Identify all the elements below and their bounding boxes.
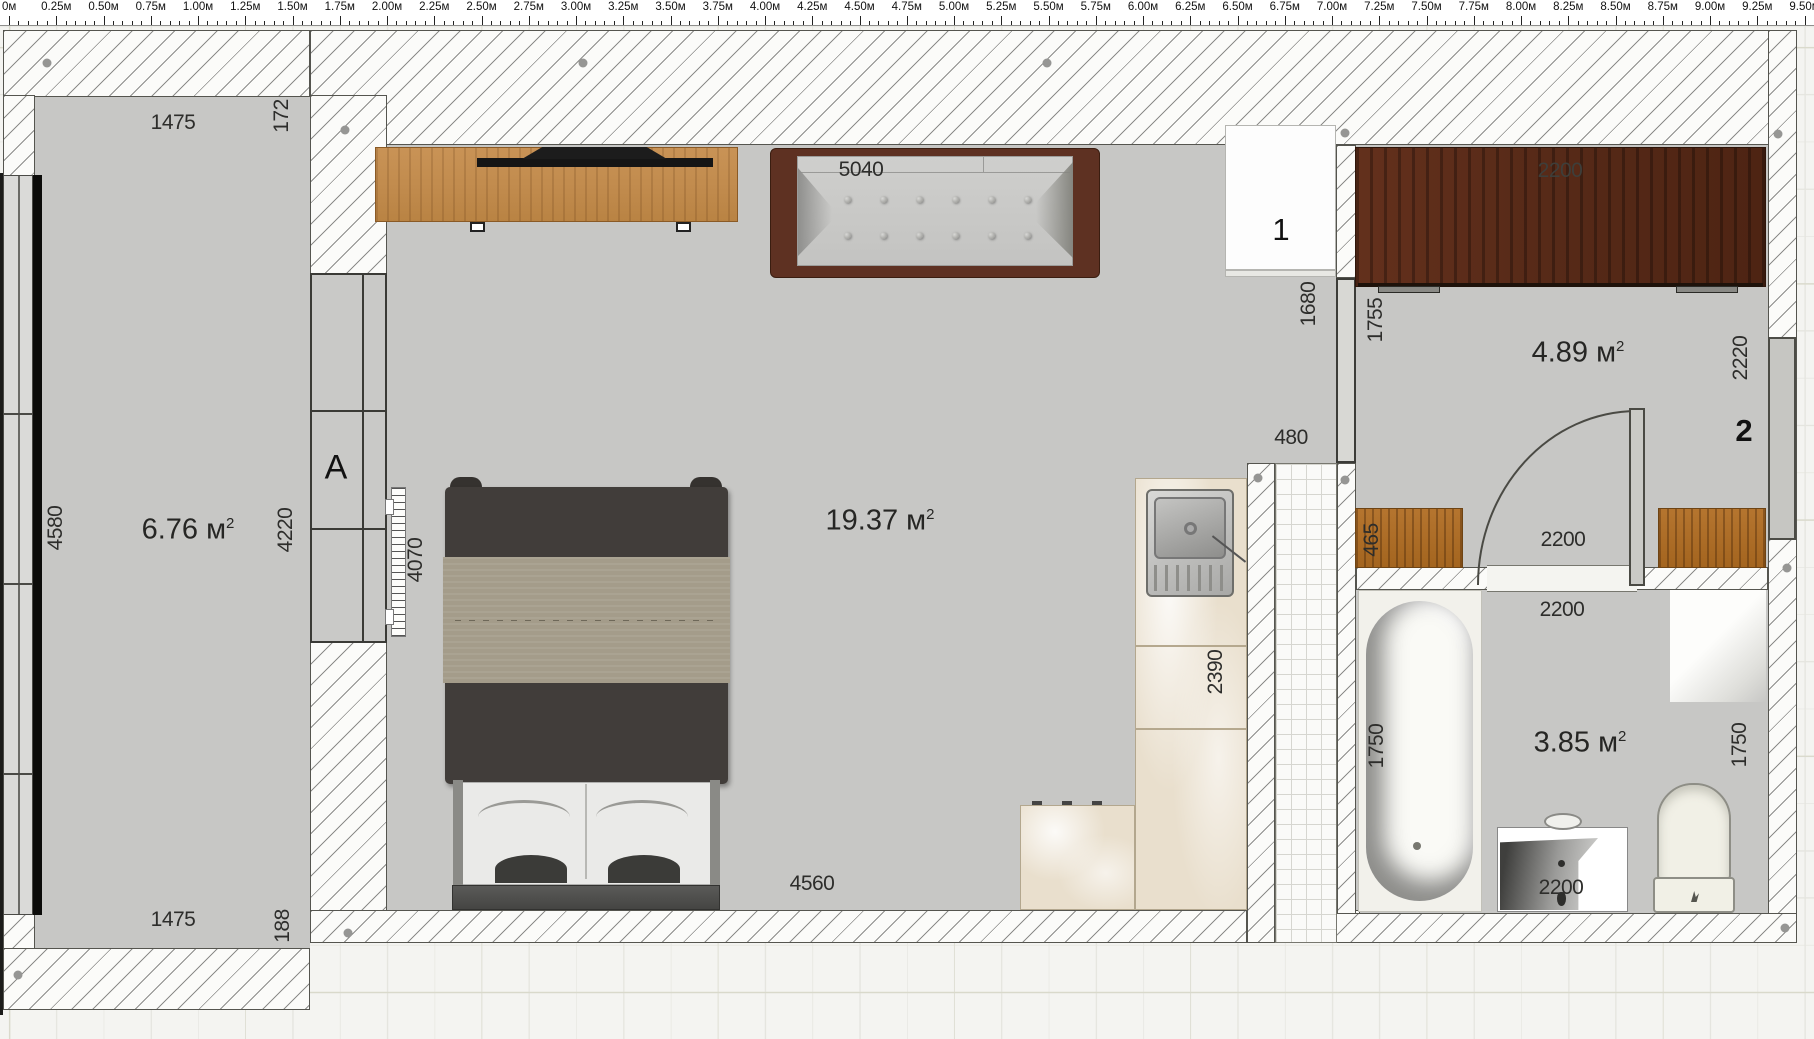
ruler-tick-minor — [255, 21, 256, 25]
dim-balcony-bottom: 1475 — [151, 908, 196, 932]
ruler-tick-minor — [453, 21, 454, 25]
ruler-tick-major — [718, 16, 719, 25]
ruler-tick-minor — [548, 21, 549, 25]
ruler-tick-minor — [1672, 21, 1673, 25]
ruler-tick-minor — [642, 21, 643, 25]
ruler-tick-minor — [113, 21, 114, 25]
area-hallway-value: 4.89 — [1532, 337, 1588, 369]
tv-stand-foot — [470, 222, 485, 232]
ruler-tick-major — [1332, 16, 1333, 25]
ruler-tick-major — [1427, 16, 1428, 25]
ruler-label: 1.50м — [277, 1, 307, 13]
ruler-tick-minor — [519, 21, 520, 25]
ruler-tick-major — [907, 16, 908, 25]
ruler-label: 3.50м — [655, 1, 685, 13]
dim-living-wall: 1680 — [1297, 282, 1321, 327]
ruler-tick-minor — [500, 21, 501, 25]
ruler-tick-minor — [926, 21, 927, 25]
ruler-tick-minor — [1370, 21, 1371, 25]
ruler-label: 9.00м — [1695, 1, 1725, 13]
wall-balcony-left-upper — [3, 95, 35, 177]
ruler-label: 5.00м — [939, 1, 969, 13]
kitchen-counter-seam — [1136, 645, 1246, 647]
ruler-tick-major — [1143, 16, 1144, 25]
ruler-tick-minor — [47, 21, 48, 25]
ruler-tick-minor — [491, 21, 492, 25]
dim-living-side: 4070 — [404, 538, 428, 583]
ruler-tick-major — [1805, 16, 1806, 25]
ruler-tick-minor — [1719, 21, 1720, 25]
ruler-label: 1.75м — [325, 1, 355, 13]
window-A-divider — [312, 528, 385, 530]
ruler-tick-minor — [1682, 21, 1683, 25]
bed-rail-right — [710, 780, 720, 885]
ruler-tick-major — [1379, 16, 1380, 25]
ruler-tick-minor — [1067, 21, 1068, 25]
ruler-tick-minor — [1341, 21, 1342, 25]
ruler-tick-minor — [226, 21, 227, 25]
ruler-tick-minor — [160, 21, 161, 25]
ruler-tick-minor — [538, 21, 539, 25]
ruler-tick-minor — [841, 21, 842, 25]
bed-pillow — [478, 800, 570, 834]
ruler-tick-minor — [784, 21, 785, 25]
ruler-tick-minor — [614, 21, 615, 25]
ruler-tick-minor — [680, 21, 681, 25]
ruler-tick-minor — [633, 21, 634, 25]
ruler-label: 3.75м — [703, 1, 733, 13]
ruler-label: 1.00м — [183, 1, 213, 13]
ruler-tick-major — [623, 16, 624, 25]
dim-cabinet: 465 — [1360, 523, 1384, 557]
ruler-tick-minor — [189, 21, 190, 25]
ruler-tick-minor — [992, 21, 993, 25]
ruler-tick-minor — [1455, 21, 1456, 25]
ruler-tick-minor — [822, 21, 823, 25]
wall-joint-dot — [1783, 564, 1792, 573]
ruler-tick-minor — [945, 21, 946, 25]
window-frame-mullion — [18, 176, 20, 914]
ruler-tick-minor — [378, 21, 379, 25]
ruler-tick-minor — [444, 21, 445, 25]
wall-joint-dot — [1781, 924, 1790, 933]
ruler-tick-major — [1238, 16, 1239, 25]
ruler-tick-minor — [368, 21, 369, 25]
wall-joint-dot — [43, 59, 52, 68]
ruler-label: 5.25м — [986, 1, 1016, 13]
wall-joint-dot — [579, 59, 588, 68]
door-1-leaf[interactable] — [1225, 125, 1336, 270]
bed-pillow — [596, 800, 688, 834]
ruler-tick-major — [1710, 16, 1711, 25]
ruler-tick-minor — [1058, 21, 1059, 25]
ruler-tick-minor — [1115, 21, 1116, 25]
ruler-tick-minor — [283, 21, 284, 25]
ruler-tick-minor — [37, 21, 38, 25]
ruler-tick-major — [9, 16, 10, 25]
ruler-tick-major — [198, 16, 199, 25]
dim-sofa: 5040 — [839, 158, 884, 182]
area-living-value: 19.37 — [826, 505, 899, 537]
ruler-tick-major — [482, 16, 483, 25]
window-A-mullion — [362, 275, 364, 641]
ruler-tick-minor — [264, 21, 265, 25]
ruler-tick-minor — [1445, 21, 1446, 25]
ruler-tick-minor — [1417, 21, 1418, 25]
dim-balcony-wall-bottom: 188 — [271, 909, 295, 943]
ruler-tick-major — [1616, 16, 1617, 25]
ruler-tick-minor — [1171, 21, 1172, 25]
ruler-tick-minor — [1776, 21, 1777, 25]
ruler-tick-minor — [1086, 21, 1087, 25]
ruler-label: 3.25м — [608, 1, 638, 13]
toilet-bowl[interactable] — [1657, 783, 1731, 883]
ruler-tick-minor — [1606, 21, 1607, 25]
area-hallway: 4.89 м2 — [1532, 337, 1625, 370]
ruler-tick-major — [1049, 16, 1050, 25]
sofa-tuft-dot — [880, 196, 887, 203]
tape-measure-handle[interactable] — [385, 609, 394, 625]
ruler-label: 6.50м — [1222, 1, 1252, 13]
dim-counter: 2390 — [1204, 650, 1228, 695]
ruler-label: 7.25м — [1364, 1, 1394, 13]
ruler-tick-minor — [1039, 21, 1040, 25]
ruler-label: 9.50м — [1789, 1, 1814, 13]
ruler-tick-minor — [1228, 21, 1229, 25]
ruler-label: 6.00м — [1128, 1, 1158, 13]
ruler-tick-major — [529, 16, 530, 25]
ruler-tick-minor — [1729, 21, 1730, 25]
sofa-tuft-dot — [988, 232, 995, 239]
ruler-label: 5.75м — [1081, 1, 1111, 13]
ruler-tick-minor — [1597, 21, 1598, 25]
ruler-tick-minor — [1625, 21, 1626, 25]
wall-joint-dot — [1341, 129, 1350, 138]
dim-bathroom-top: 2200 — [1540, 598, 1585, 622]
dim-bathroom-right: 1750 — [1728, 723, 1752, 768]
ruler-tick-minor — [1077, 21, 1078, 25]
sofa-tuft-dot — [916, 232, 923, 239]
ruler-tick-minor — [463, 21, 464, 25]
area-balcony-sup: 2 — [226, 515, 234, 532]
ruler-tick-minor — [349, 21, 350, 25]
door-2-leaf[interactable] — [1768, 337, 1796, 540]
ruler-tick-minor — [1398, 21, 1399, 25]
bed-blanket-fold — [608, 855, 680, 883]
ruler-tick-major — [434, 16, 435, 25]
dim-hallway-door: 2200 — [1541, 528, 1586, 552]
sofa-tuft-dot — [916, 196, 923, 203]
window-pane-divider — [4, 413, 32, 415]
ruler-tick-major — [1521, 16, 1522, 25]
balcony-window-frame[interactable] — [3, 175, 33, 915]
ruler-tick-major — [1190, 16, 1191, 25]
wall-bottom-bathroom — [1335, 913, 1797, 943]
ruler-tick-minor — [122, 21, 123, 25]
ruler-tick-minor — [1134, 21, 1135, 25]
ruler-tick-major — [1663, 16, 1664, 25]
wardrobe-bracket — [1378, 286, 1440, 293]
ruler-tick-major — [1757, 16, 1758, 25]
ruler-label: 4.75м — [892, 1, 922, 13]
wall-balcony-divider-lower — [310, 641, 387, 913]
ruler-tick-minor — [274, 21, 275, 25]
dim-balcony-left: 4580 — [44, 506, 68, 551]
ruler-tick-major — [671, 16, 672, 25]
tv-stand-foot — [676, 222, 691, 232]
door-1-threshold — [1225, 270, 1336, 277]
ruler-tick-minor — [1152, 21, 1153, 25]
ruler-tick-minor — [75, 21, 76, 25]
sofa-tuft-dot — [988, 196, 995, 203]
ruler-label: 8.50м — [1600, 1, 1630, 13]
ruler-tick-minor — [595, 21, 596, 25]
dim-balcony-right: 4220 — [274, 508, 298, 553]
ruler-tick-minor — [604, 21, 605, 25]
ruler-tick-minor — [132, 21, 133, 25]
tape-measure-handle[interactable] — [385, 499, 394, 515]
door-1-label: 1 — [1272, 212, 1289, 248]
sofa-tuft-dot — [1024, 196, 1031, 203]
wall-joint-dot — [1043, 59, 1052, 68]
kitchen-counter-handles — [1032, 801, 1102, 805]
ruler-tick-minor — [302, 21, 303, 25]
wall-top-main — [310, 30, 1797, 145]
ruler-tick-major — [1001, 16, 1002, 25]
ruler-tick-minor — [1247, 21, 1248, 25]
window-A-label: A — [325, 449, 348, 488]
ruler-tick-minor — [1124, 21, 1125, 25]
ruler-label: 0.75м — [136, 1, 166, 13]
ruler-tick-major — [293, 16, 294, 25]
dim-living-bottom: 4560 — [790, 872, 835, 896]
ruler-tick-minor — [793, 21, 794, 25]
shower-zone[interactable] — [1670, 590, 1766, 702]
ruler-tick-minor — [1795, 21, 1796, 25]
ruler-tick-minor — [585, 21, 586, 25]
ruler-tick-minor — [897, 21, 898, 25]
ruler-tick-minor — [141, 21, 142, 25]
wall-shaft-right — [1337, 463, 1356, 943]
window-pane-divider — [4, 773, 32, 775]
sofa-tuft-dot — [880, 232, 887, 239]
ruler-label: 9.25м — [1742, 1, 1772, 13]
ruler-tick-minor — [1701, 21, 1702, 25]
ruler-tick-minor — [699, 21, 700, 25]
area-hallway-sup: 2 — [1616, 338, 1624, 355]
ruler-tick-minor — [1634, 21, 1635, 25]
ruler-tick-minor — [935, 21, 936, 25]
ruler-tick-minor — [1256, 21, 1257, 25]
ruler-tick-minor — [425, 21, 426, 25]
ruler-tick-minor — [746, 21, 747, 25]
ruler-label: 1.25м — [230, 1, 260, 13]
ruler-label: 8.00м — [1506, 1, 1536, 13]
ruler-tick-minor — [652, 21, 653, 25]
ruler-tick-minor — [1493, 21, 1494, 25]
dim-balcony-wall: 172 — [270, 99, 294, 133]
ruler-tick-minor — [756, 21, 757, 25]
ruler-label: 2.00м — [372, 1, 402, 13]
wall-joint-dot — [1341, 476, 1350, 485]
area-living-sup: 2 — [926, 506, 934, 523]
ruler-tick-minor — [557, 21, 558, 25]
ruler-tick-minor — [1738, 21, 1739, 25]
ruler-tick-minor — [396, 21, 397, 25]
dim-hallway-right: 2220 — [1729, 336, 1753, 381]
sofa-tuft-dot — [844, 232, 851, 239]
ruler-tick-minor — [1011, 21, 1012, 25]
ruler-tick-minor — [66, 21, 67, 25]
ruler-tick-minor — [963, 21, 964, 25]
area-bathroom-sup: 2 — [1618, 728, 1626, 745]
sink-drain — [1184, 522, 1197, 535]
ruler-tick-minor — [311, 21, 312, 25]
ruler-tick-minor — [359, 21, 360, 25]
ruler-tick-minor — [1360, 21, 1361, 25]
ruler-tick-major — [1474, 16, 1475, 25]
ruler-tick-minor — [888, 21, 889, 25]
ruler-tick-minor — [472, 21, 473, 25]
ruler-tick-minor — [1436, 21, 1437, 25]
ruler-tick-minor — [217, 21, 218, 25]
ruler-tick-minor — [1266, 21, 1267, 25]
ruler-label: 5.50м — [1033, 1, 1063, 13]
ruler-tick-minor — [1389, 21, 1390, 25]
ruler-label: 2.50м — [466, 1, 496, 13]
tv-base — [522, 147, 667, 159]
ruler-label: 4.25м — [797, 1, 827, 13]
ruler-tick-minor — [1502, 21, 1503, 25]
ruler-tick-minor — [1540, 21, 1541, 25]
area-hallway-unit: м — [1596, 337, 1616, 369]
wall-joint-dot — [344, 929, 353, 938]
ruler-tick-minor — [1030, 21, 1031, 25]
ruler-tick-minor — [1351, 21, 1352, 25]
area-balcony-unit: м — [206, 514, 226, 546]
ruler-tick-minor — [1020, 21, 1021, 25]
dim-vanity: 2200 — [1539, 876, 1584, 900]
ruler-label: 7.50м — [1411, 1, 1441, 13]
ruler-tick-minor — [1653, 21, 1654, 25]
ruler-tick-minor — [1304, 21, 1305, 25]
area-balcony-value: 6.76 — [142, 514, 198, 546]
area-living-unit: м — [906, 505, 926, 537]
bed-blanket-fold — [495, 855, 567, 883]
wall-joint-dot — [1774, 130, 1783, 139]
ruler-label: 7.75м — [1459, 1, 1489, 13]
ruler-tick-minor — [878, 21, 879, 25]
sofa-tuft-dot — [1024, 232, 1031, 239]
ruler-label: 6.25м — [1175, 1, 1205, 13]
ruler-tick-minor — [28, 21, 29, 25]
ruler-tick-minor — [170, 21, 171, 25]
kitchen-counter-corner[interactable] — [1020, 805, 1135, 910]
ruler-tick-major — [387, 16, 388, 25]
ruler-tick-minor — [330, 21, 331, 25]
ruler[interactable]: 0м0.25м0.50м0.75м1.00м1.25м1.50м1.75м2.0… — [0, 0, 1814, 26]
ruler-tick-minor — [1464, 21, 1465, 25]
ruler-label: 6.75м — [1270, 1, 1300, 13]
door-bathroom-leaf[interactable] — [1629, 408, 1645, 586]
ruler-label: 8.75м — [1648, 1, 1678, 13]
ruler-tick-minor — [1530, 21, 1531, 25]
ruler-tick-minor — [661, 21, 662, 25]
ruler-tick-minor — [916, 21, 917, 25]
ruler-tick-major — [56, 16, 57, 25]
wall-bottom-balcony — [3, 948, 310, 1010]
ruler-tick-minor — [1691, 21, 1692, 25]
ruler-tick-minor — [982, 21, 983, 25]
ruler-tick-minor — [1408, 21, 1409, 25]
door-2-label: 2 — [1735, 413, 1752, 449]
ruler-tick-major — [1096, 16, 1097, 25]
ruler-tick-minor — [1323, 21, 1324, 25]
bathtub-drain — [1413, 842, 1421, 850]
ruler-tick-minor — [236, 21, 237, 25]
ruler-tick-minor — [1748, 21, 1749, 25]
ruler-tick-minor — [737, 21, 738, 25]
area-bathroom-value: 3.85 — [1534, 727, 1590, 759]
area-living: 19.37 м2 — [826, 505, 935, 538]
area-bathroom: 3.85 м2 — [1534, 727, 1627, 760]
ruler-tick-minor — [1559, 21, 1560, 25]
partition-wall-1680[interactable] — [1336, 278, 1356, 463]
ruler-tick-minor — [1578, 21, 1579, 25]
ruler-tick-minor — [1219, 21, 1220, 25]
vanity-drain-dot — [1558, 860, 1565, 867]
wall-living-right-upper — [1336, 145, 1356, 278]
ruler-tick-minor — [1181, 21, 1182, 25]
shaft-tiles — [1275, 463, 1337, 943]
ruler-tick-minor — [708, 21, 709, 25]
ruler-tick-minor — [94, 21, 95, 25]
dim-hallway-left: 1755 — [1364, 298, 1388, 343]
ruler-tick-minor — [567, 21, 568, 25]
sofa-tuft-dot — [952, 196, 959, 203]
ruler-tick-minor — [689, 21, 690, 25]
ruler-tick-major — [151, 16, 152, 25]
ruler-tick-minor — [803, 21, 804, 25]
ruler-tick-major — [812, 16, 813, 25]
ruler-tick-minor — [406, 21, 407, 25]
wall-balcony-left-lower — [3, 913, 35, 953]
dim-living-opening: 480 — [1274, 426, 1308, 450]
ruler-tick-minor — [1786, 21, 1787, 25]
ruler-tick-minor — [1767, 21, 1768, 25]
ruler-tick-minor — [207, 21, 208, 25]
tv-screen[interactable] — [477, 158, 713, 167]
bed-center-crease — [585, 784, 587, 879]
area-balcony: 6.76 м2 — [142, 514, 235, 547]
ruler-label: 0.25м — [41, 1, 71, 13]
sofa-tuft-dot — [844, 196, 851, 203]
ruler-tick-minor — [321, 21, 322, 25]
ruler-label: 4.00м — [750, 1, 780, 13]
ruler-tick-minor — [1162, 21, 1163, 25]
ruler-tick-minor — [179, 21, 180, 25]
ruler-tick-major — [340, 16, 341, 25]
wall-joint-dot — [341, 126, 350, 135]
wall-bottom-main — [310, 910, 1247, 943]
ruler-tick-minor — [415, 21, 416, 25]
ruler-tick-major — [1285, 16, 1286, 25]
ruler-label: 2.75м — [514, 1, 544, 13]
hallway-cabinet-right[interactable] — [1658, 508, 1766, 568]
window-A[interactable] — [310, 273, 387, 643]
bed-pedestal — [452, 885, 720, 910]
sofa-tuft-dot — [952, 232, 959, 239]
